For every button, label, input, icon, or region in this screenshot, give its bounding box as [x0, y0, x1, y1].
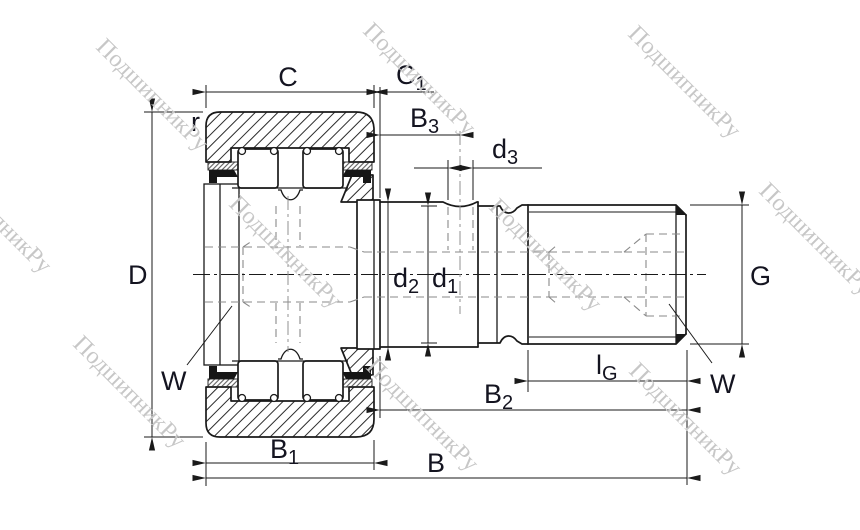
watermark: ПодшипникРу: [623, 21, 746, 144]
technical-drawing-page: C C1 B3 d3 D r d2 d1 G: [0, 0, 860, 530]
dimension-label-B2: B2: [484, 379, 513, 414]
watermark: ПодшипникРу: [361, 354, 484, 477]
watermark: ПодшипникРу: [0, 156, 57, 279]
dimension-label-d2: d2: [393, 263, 419, 298]
dimension-label-D: D: [128, 260, 148, 290]
dimension-label-C: C: [278, 62, 298, 92]
dimension-label-d1: d1: [432, 263, 458, 298]
dimension-label-W-right: W: [710, 369, 736, 399]
dimension-label-W-left: W: [161, 366, 187, 396]
lubrication-hole-callout-right: W: [669, 304, 736, 399]
dimension-d3: d3: [414, 134, 542, 200]
dimension-d2: d2: [388, 202, 419, 347]
dimension-label-G: G: [750, 261, 771, 291]
cam-follower-bearing-drawing: C C1 B3 d3 D r d2 d1 G: [0, 0, 860, 530]
dimension-lG: lG: [528, 350, 687, 485]
dimension-C: C: [206, 62, 374, 108]
watermarks: ПодшипникРу ПодшипникРу ПодшипникРу Подш…: [0, 18, 860, 481]
dimension-label-B1: B1: [270, 434, 299, 469]
dimension-label-d3: d3: [492, 134, 518, 169]
dimension-label-lG: lG: [596, 350, 618, 385]
watermark: ПодшипникРу: [224, 191, 347, 314]
